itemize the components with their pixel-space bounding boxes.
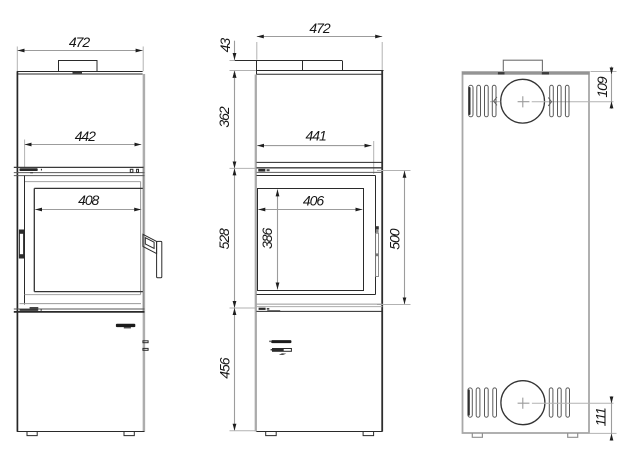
- svg-text:500: 500: [387, 228, 403, 249]
- svg-text:528: 528: [216, 228, 232, 249]
- svg-text:43: 43: [217, 38, 233, 53]
- svg-text:406: 406: [303, 192, 324, 208]
- svg-text:472: 472: [309, 20, 330, 36]
- svg-text:109: 109: [594, 76, 610, 97]
- svg-text:386: 386: [259, 228, 275, 249]
- svg-text:408: 408: [78, 192, 99, 208]
- svg-text:111: 111: [593, 408, 609, 426]
- svg-text:456: 456: [216, 357, 232, 378]
- svg-text:441: 441: [305, 127, 325, 143]
- svg-text:442: 442: [75, 128, 96, 144]
- svg-text:472: 472: [69, 34, 90, 50]
- svg-text:362: 362: [216, 106, 232, 127]
